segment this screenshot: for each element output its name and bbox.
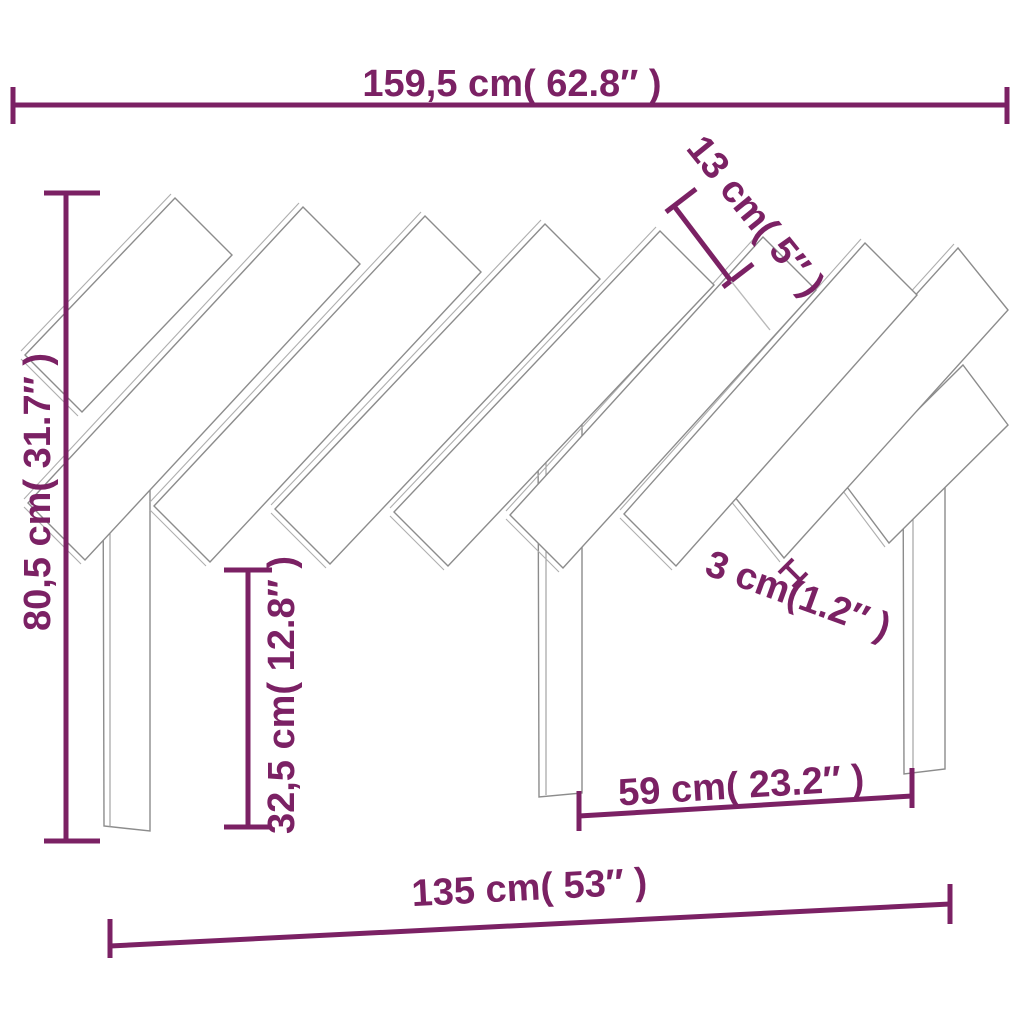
headboard-dimension-diagram: 159,5 cm( 62.8″ ) 80,5 cm( 31.7″ ) 13 cm… bbox=[0, 0, 1024, 1024]
dim-slat-width-tick-upper bbox=[666, 189, 696, 212]
dim-leg-gap-label: 59 cm( 23.2″ ) bbox=[617, 758, 865, 815]
dim-leg-gap: 59 cm( 23.2″ ) bbox=[579, 758, 912, 831]
dim-thickness: 3 cm(1.2″ ) bbox=[700, 543, 896, 649]
dim-leg-height-label: 32,5 cm( 12.8″ ) bbox=[261, 556, 303, 834]
dim-height-total-label: 80,5 cm( 31.7″ ) bbox=[17, 353, 59, 631]
headboard-drawing bbox=[21, 194, 1008, 831]
dim-width-top-label: 159,5 cm( 62.8″ ) bbox=[362, 63, 661, 105]
dim-leg-height: 32,5 cm( 12.8″ ) bbox=[224, 556, 303, 834]
dim-width-top: 159,5 cm( 62.8″ ) bbox=[13, 63, 1007, 124]
dim-width-bottom: 135 cm( 53″ ) bbox=[110, 861, 950, 958]
dim-width-bottom-line bbox=[110, 904, 950, 946]
dim-thickness-label: 3 cm(1.2″ ) bbox=[700, 543, 896, 649]
diagram-canvas: 159,5 cm( 62.8″ ) 80,5 cm( 31.7″ ) 13 cm… bbox=[0, 0, 1024, 1024]
dim-width-bottom-label: 135 cm( 53″ ) bbox=[411, 861, 649, 915]
